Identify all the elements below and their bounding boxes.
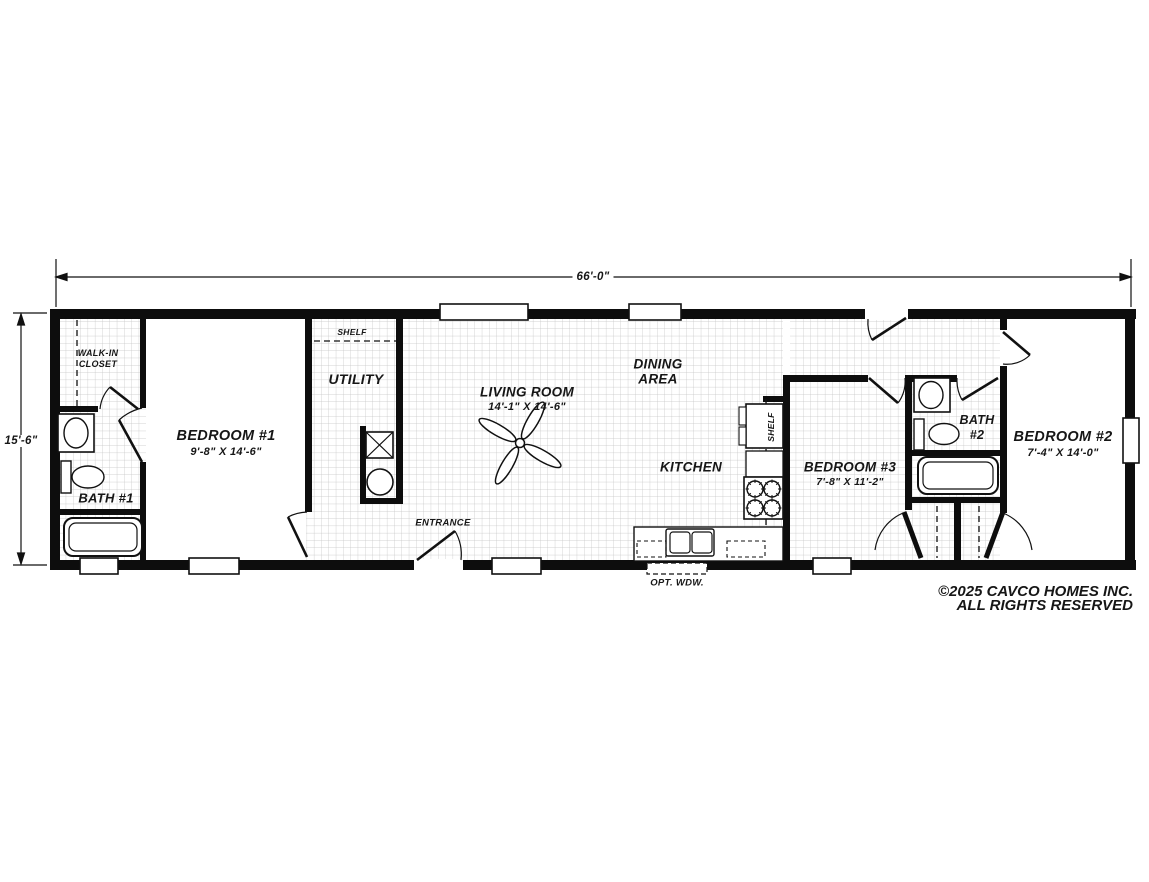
bath2-toilet xyxy=(929,424,959,445)
window-bedroom1 xyxy=(189,558,239,574)
refrigerator xyxy=(746,404,783,448)
floor-plan-canvas: 66'-0" 15'-6" WALK-IN CLOSET BATH #1 BED… xyxy=(0,0,1149,882)
bath2-toilet-tank xyxy=(914,419,924,450)
copyright-notice: ©2025 CAVCO HOMES INC. ALL RIGHTS RESERV… xyxy=(938,585,1133,613)
bedroom1-door xyxy=(288,512,307,557)
floor-plan-drawing xyxy=(0,0,1149,882)
window-bedroom3 xyxy=(813,558,851,574)
window-living-bottom xyxy=(492,558,541,574)
window-living-top xyxy=(440,304,528,320)
copyright-line2: ALL RIGHTS RESERVED xyxy=(938,599,1133,613)
optional-window xyxy=(647,563,707,574)
dryer-icon xyxy=(367,469,393,495)
tiled-floor xyxy=(60,319,1000,560)
window-bath1 xyxy=(80,558,118,574)
bath1-toilet xyxy=(72,466,104,488)
bedroom2-door xyxy=(1003,332,1030,364)
bath1-toilet-tank xyxy=(61,461,71,493)
window-dining-top xyxy=(629,304,681,320)
window-bedroom2 xyxy=(1123,418,1139,463)
